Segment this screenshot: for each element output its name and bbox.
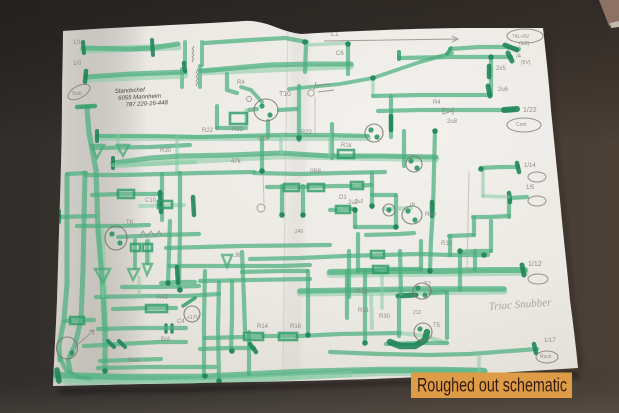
svg-text:Roughed out schematic: Roughed out schematic — [417, 376, 567, 397]
svg-text:R44: R44 — [128, 358, 140, 364]
svg-text:1/5: 1/5 — [526, 185, 535, 191]
svg-text:Rock: Rock — [540, 354, 552, 360]
svg-text:R30: R30 — [379, 314, 391, 320]
svg-text:2u8: 2u8 — [447, 119, 458, 125]
svg-text:240: 240 — [295, 229, 304, 235]
svg-text:R12: R12 — [356, 289, 368, 295]
svg-text:C6: C6 — [336, 51, 344, 57]
svg-text:1/17: 1/17 — [544, 338, 556, 344]
svg-text:0R8: 0R8 — [310, 169, 322, 175]
svg-text:R43: R43 — [157, 295, 169, 301]
svg-text:1/1: 1/1 — [73, 40, 82, 46]
svg-text:C4: C4 — [177, 319, 185, 325]
svg-text:Swb: Swb — [72, 91, 82, 97]
svg-text:R22: R22 — [301, 130, 313, 136]
svg-text:1/0: 1/0 — [73, 61, 82, 67]
svg-text:+17V: +17V — [187, 315, 199, 321]
svg-text:2u2: 2u2 — [355, 199, 364, 205]
svg-text:74L+5V: 74L+5V — [512, 34, 530, 40]
svg-text:T5: T5 — [433, 323, 441, 329]
svg-text:2x5: 2x5 — [496, 66, 506, 72]
svg-text:R16: R16 — [290, 324, 302, 330]
svg-text:D1: D1 — [339, 195, 347, 201]
svg-text:C11: C11 — [258, 136, 269, 142]
svg-text:B/A: B/A — [161, 337, 171, 343]
svg-text:R10: R10 — [441, 241, 453, 247]
svg-text:2u6: 2u6 — [498, 87, 509, 93]
svg-text:1/12: 1/12 — [528, 261, 542, 268]
svg-text:R4: R4 — [237, 80, 245, 86]
svg-text:1/14: 1/14 — [524, 163, 536, 169]
svg-text:R31: R31 — [358, 308, 370, 314]
svg-text:212: 212 — [413, 310, 422, 316]
svg-text:R22: R22 — [202, 128, 214, 134]
svg-text:1/22: 1/22 — [523, 107, 537, 114]
svg-text:R4: R4 — [433, 100, 441, 106]
svg-text:C10: C10 — [145, 198, 157, 204]
svg-text:Cont: Cont — [516, 122, 527, 128]
svg-text:(1/2): (1/2) — [519, 41, 530, 47]
svg-text:R30: R30 — [160, 148, 172, 154]
svg-text:ds: ds — [410, 202, 416, 208]
svg-text:R14: R14 — [257, 324, 269, 330]
svg-text:T2: T2 — [424, 282, 432, 288]
svg-text:(5V): (5V) — [521, 60, 531, 66]
svg-text:J6: J6 — [234, 253, 241, 259]
svg-text:R20: R20 — [425, 212, 437, 218]
svg-text:T10: T10 — [279, 91, 291, 98]
svg-text:T6: T6 — [126, 220, 134, 226]
svg-text:R32: R32 — [232, 127, 244, 133]
svg-text:47k: 47k — [231, 159, 242, 165]
svg-text:R1k: R1k — [341, 143, 353, 149]
